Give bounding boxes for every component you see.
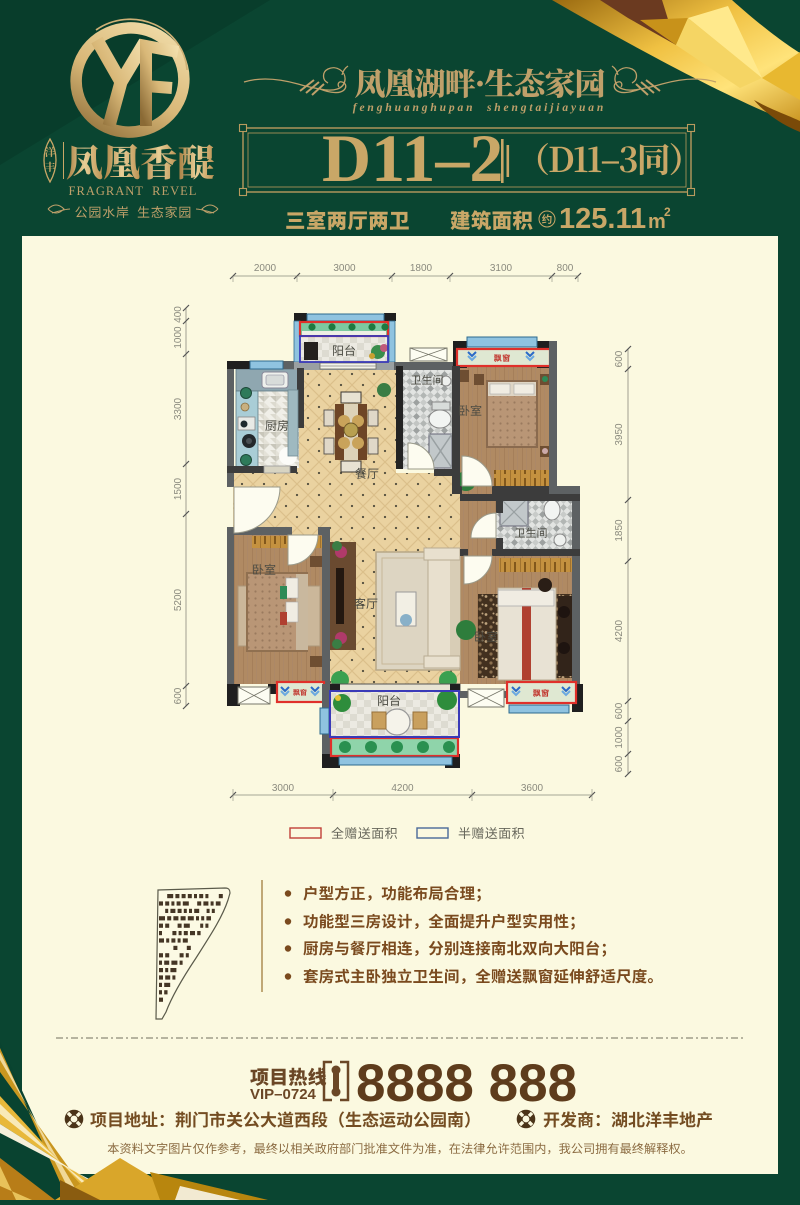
svg-text:4200: 4200 bbox=[614, 619, 625, 642]
svg-text:1000: 1000 bbox=[173, 326, 184, 349]
svg-text:600: 600 bbox=[614, 350, 625, 367]
svg-text:D11–2: D11–2 bbox=[322, 120, 503, 196]
svg-text:3950: 3950 bbox=[614, 423, 625, 446]
svg-text:FRAGRANT REVEL: FRAGRANT REVEL bbox=[69, 184, 198, 198]
svg-text:600: 600 bbox=[173, 687, 184, 704]
svg-text:8888 888: 8888 888 bbox=[356, 1054, 577, 1113]
svg-text:4200: 4200 bbox=[391, 783, 414, 794]
svg-text:3000: 3000 bbox=[272, 783, 295, 794]
svg-text:1800: 1800 bbox=[410, 263, 433, 274]
svg-text:3100: 3100 bbox=[490, 263, 513, 274]
svg-text:5200: 5200 bbox=[173, 588, 184, 611]
svg-text:3000: 3000 bbox=[333, 263, 356, 274]
svg-text:2: 2 bbox=[664, 205, 671, 219]
svg-text:800: 800 bbox=[557, 263, 574, 274]
svg-text:1850: 1850 bbox=[614, 519, 625, 542]
svg-text:1500: 1500 bbox=[173, 477, 184, 500]
svg-text:125.11: 125.11 bbox=[559, 203, 646, 235]
svg-text:400: 400 bbox=[173, 306, 184, 323]
svg-text:f e n g h u a n g h u p a n: f e n g h u a n g h u p a n s h e n g t … bbox=[353, 102, 604, 114]
svg-text:3300: 3300 bbox=[173, 397, 184, 420]
svg-text:VIP–0724: VIP–0724 bbox=[250, 1086, 317, 1103]
svg-text:1000: 1000 bbox=[614, 726, 625, 749]
svg-text:3600: 3600 bbox=[521, 783, 544, 794]
svg-text:600: 600 bbox=[614, 755, 625, 772]
svg-text:600: 600 bbox=[614, 702, 625, 719]
svg-text:2000: 2000 bbox=[254, 263, 277, 274]
